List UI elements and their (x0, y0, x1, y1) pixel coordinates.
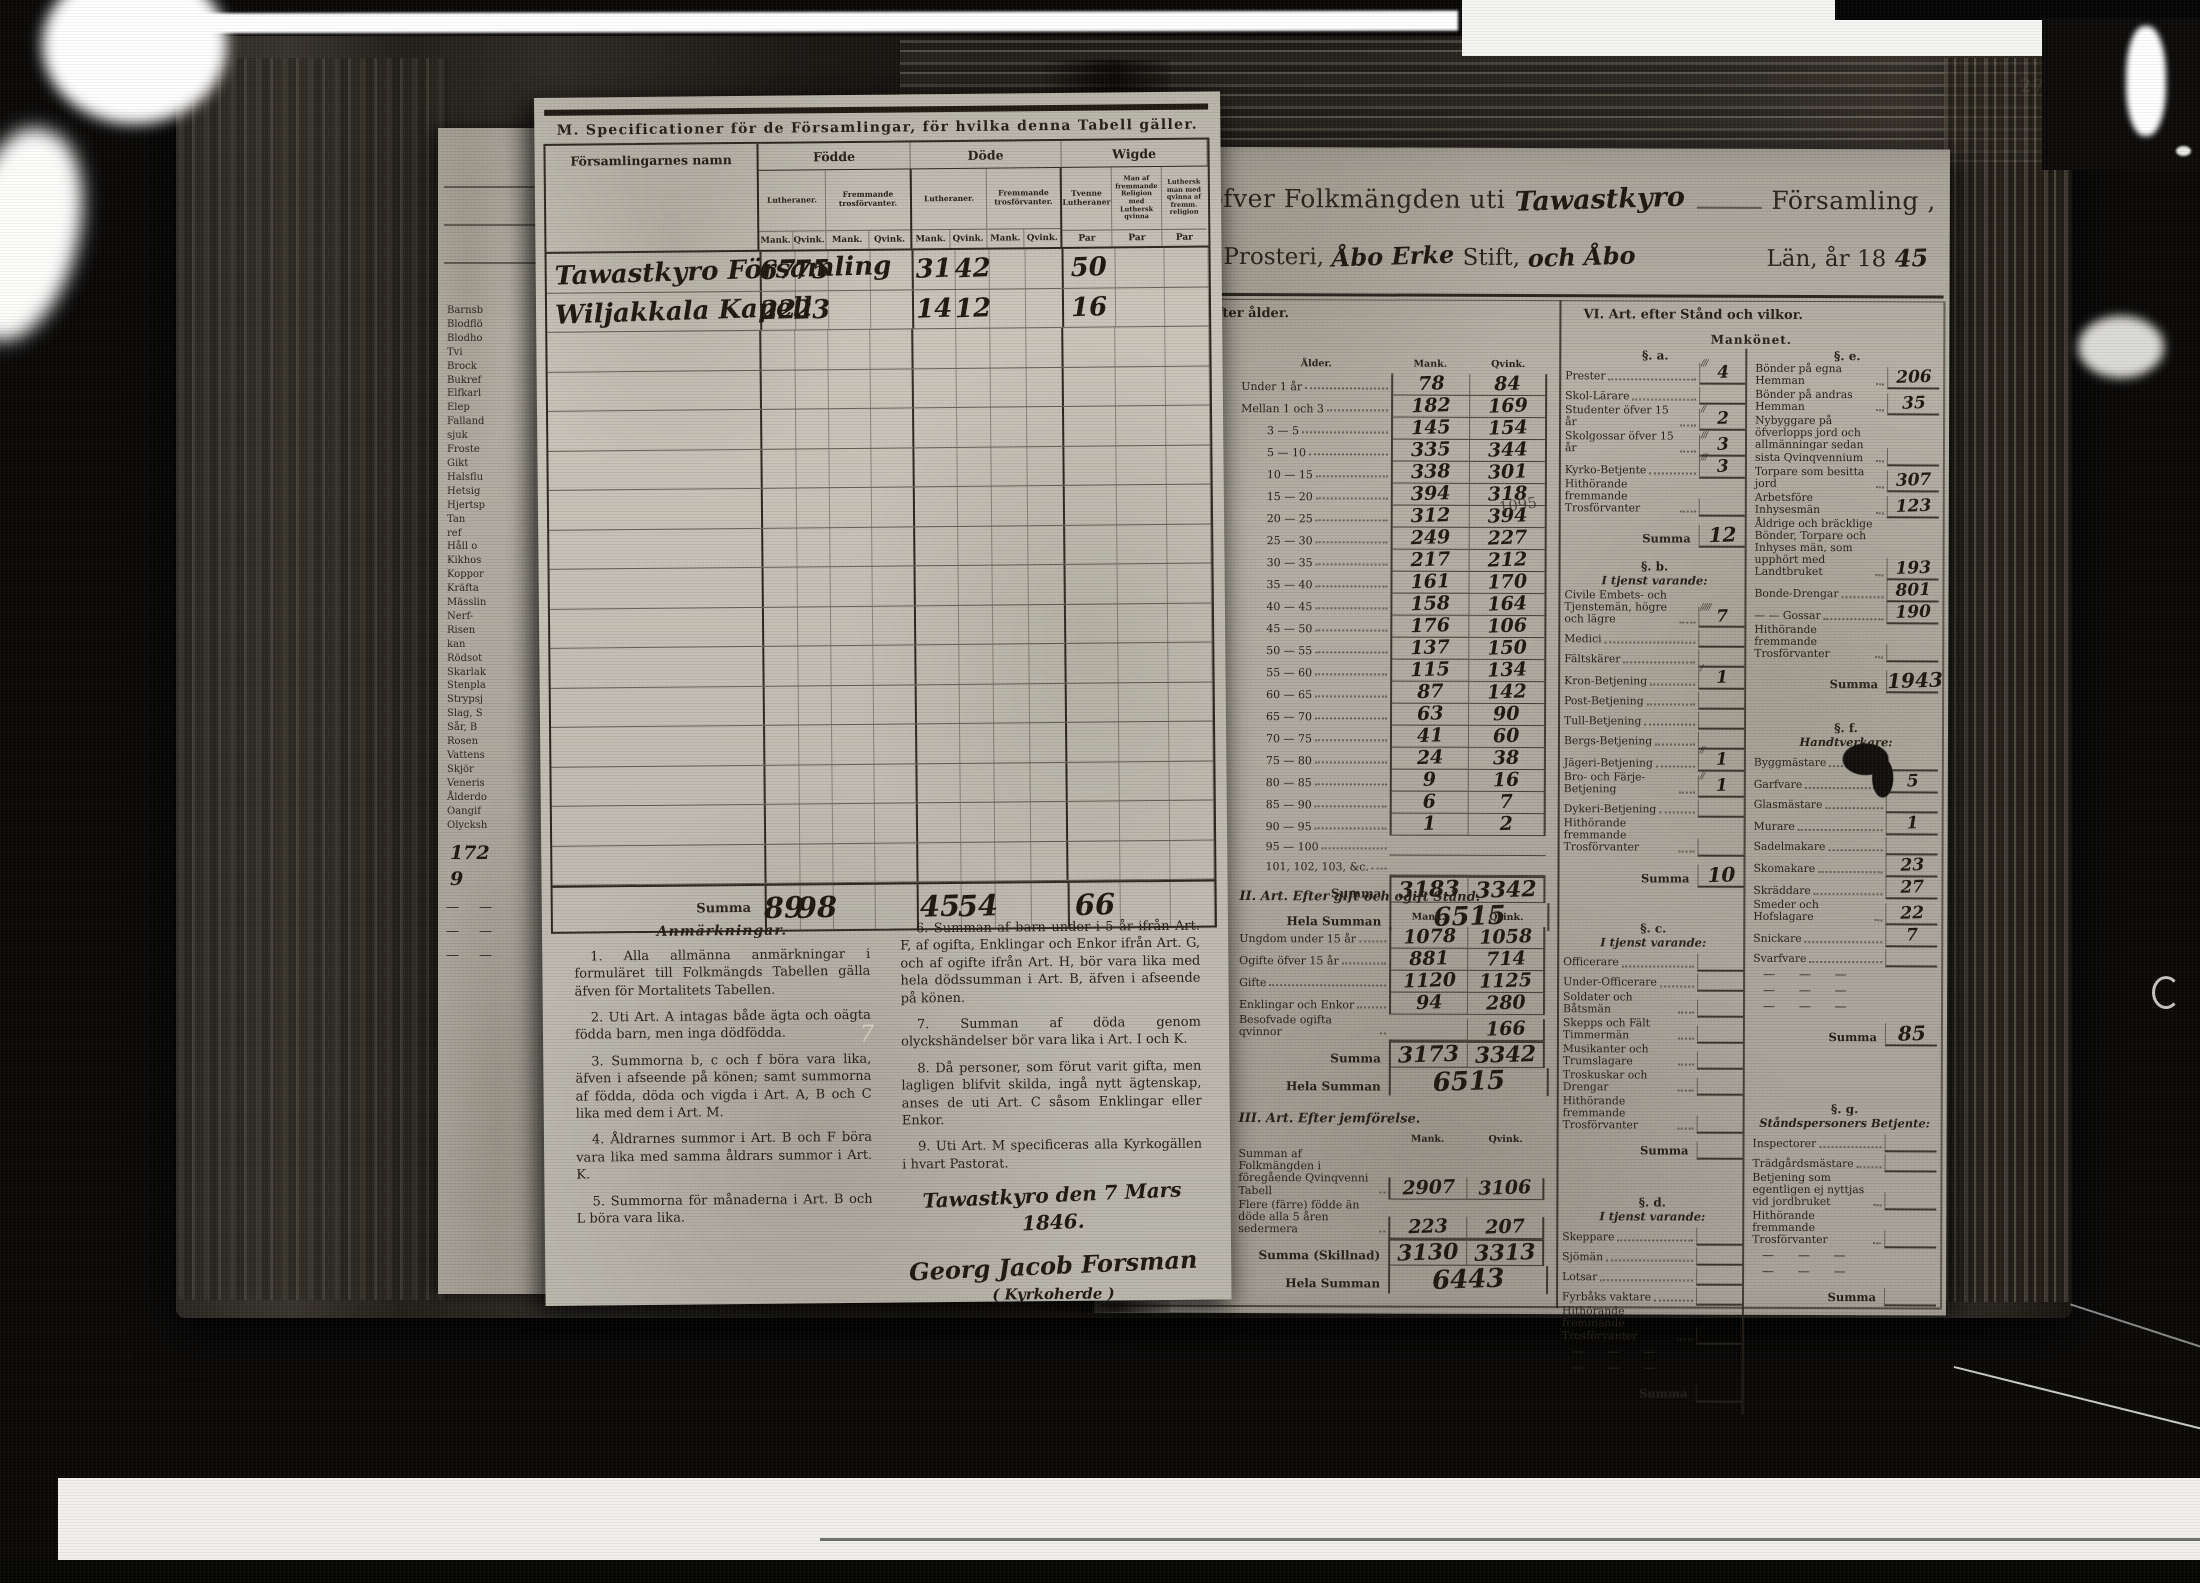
anmarkning-note: 6. Summan af barn under i 5 år ifrån Art… (900, 918, 1201, 1008)
qvink-value: 2 (1499, 814, 1513, 835)
qvink-cell: 84 (1469, 374, 1547, 396)
dot-leader (1876, 410, 1884, 412)
dot-leader (1605, 642, 1696, 644)
cell-value (993, 644, 1029, 683)
anmarkning-note: 9. Uti Art. M specificeras alla Kyrkogäl… (902, 1136, 1202, 1174)
cell-value (800, 844, 833, 883)
cell-value (799, 646, 832, 685)
hela-summan-label: Hela Summan (1238, 1277, 1388, 1293)
cell-value (1117, 524, 1167, 563)
row-label-text: 70 — 75 (1266, 733, 1312, 745)
stand-item: Snickare7 (1753, 925, 1937, 947)
dot-leader (1316, 563, 1388, 565)
cell-value: 75 (795, 251, 828, 290)
stand-item: Musikanter och Trumslagare (1563, 1043, 1743, 1070)
stand-item: Skol-Lärare (1565, 384, 1745, 405)
count-handwritten: 14 (916, 293, 953, 324)
stand-item-number: 801 (1895, 582, 1931, 601)
row-label-text: Ogifte öfver 15 år (1239, 955, 1339, 968)
stand-item: Skeppare (1562, 1226, 1742, 1247)
table-row (548, 445, 1210, 491)
par-label: Par (1112, 229, 1161, 246)
summa-label: Summa (Skillnad) (1238, 1249, 1388, 1265)
mank-value: 87 (1417, 681, 1444, 703)
stand-item: Kyrko-Betjente///3 (1565, 456, 1745, 478)
dot-leader (1269, 984, 1386, 986)
hela-label-text: Hela Summan (1286, 1080, 1381, 1094)
stand-item-label: Trädgårdsmästare (1752, 1157, 1853, 1171)
table-row: 60 — 6587142 (1240, 681, 1552, 704)
cell-value (871, 369, 914, 408)
qvink-value: 90 (1493, 704, 1520, 726)
group-summa-cell: 10 (1697, 864, 1743, 887)
notes-list-1: 1. Alla allmänna anmärkningar i formulär… (574, 946, 873, 1229)
hela-summan-row: Hela Summan6515 (1239, 1067, 1551, 1096)
cell-value (1116, 406, 1166, 445)
dot-leader (1873, 1242, 1881, 1244)
qvink-value: 166 (1485, 1019, 1525, 1041)
cell-value (915, 487, 958, 526)
stand-item-value (1884, 1192, 1936, 1210)
cell-value (961, 803, 995, 842)
notes-column-2: 6. Summan af barn under i 5 år ifrån Art… (900, 918, 1204, 1306)
anmarkning-note: 7. Summan af döda genom olyckshändelser … (901, 1014, 1201, 1052)
row-label-text: 85 — 90 (1266, 799, 1312, 811)
cell-value (1165, 287, 1209, 326)
row-label-text: 35 — 40 (1266, 579, 1312, 591)
cell-value (832, 685, 874, 724)
stand-item-number: 3 (1716, 437, 1728, 455)
qvink-cell: 1058 (1467, 926, 1545, 948)
summa-mank-value: 3130 (1397, 1240, 1459, 1266)
mank-label: Mank. (826, 231, 869, 249)
dot-leader (1315, 805, 1387, 807)
dot-leader (1315, 761, 1387, 763)
stand-group: §. a.Prester///4Skol-LärareStudenter öfv… (1565, 348, 1746, 548)
mank-cell: 1078 (1389, 926, 1467, 948)
group-summa-cell (1884, 1288, 1936, 1306)
cell-value (829, 369, 871, 408)
cell-value (991, 486, 1027, 525)
signature-name: Georg Jacob Forsman (903, 1243, 1204, 1288)
cell-value (800, 804, 833, 843)
table-row: 5 — 10335344 (1241, 439, 1553, 462)
dot-leader (1644, 724, 1695, 726)
summa-row: Summa31733342 (1239, 1040, 1551, 1068)
stand-item-label: Snickare (1753, 932, 1801, 946)
title-printed-stift: Stift, (1463, 245, 1521, 271)
tally-marks: // (1700, 746, 1704, 756)
qvink-cell: 60 (1468, 726, 1546, 748)
cell-value (765, 725, 799, 764)
cell-value (957, 408, 991, 447)
group-header-row: Födde Döde Wigde (758, 140, 1207, 171)
dot-leader (1315, 695, 1387, 697)
stand-item-value (1884, 1154, 1936, 1172)
stand-item: Skepps och Fält Timmermän (1563, 1017, 1743, 1044)
row-label-text: Mellan 1 och 3 (1241, 403, 1324, 416)
stand-item: Hithörande fremmande Trosförvanter (1754, 624, 1938, 663)
row-label-text: 80 — 85 (1266, 777, 1312, 789)
stand-item-value (1886, 837, 1938, 855)
row-label-text: Enklingar och Enkor (1239, 999, 1354, 1012)
cell-namn (552, 805, 767, 846)
group-summa-row: Summa10 (1563, 864, 1743, 888)
mank-cell: 63 (1390, 704, 1468, 726)
cell-value (1116, 327, 1166, 366)
table-row: 25 — 30249227 (1241, 527, 1553, 550)
stand-item-number: 22 (1900, 905, 1924, 924)
cell-value (1167, 445, 1211, 484)
stand-item-number: 206 (1896, 369, 1932, 388)
cell-value (995, 842, 1031, 881)
stand-item-label: Svarfvare (1753, 952, 1806, 966)
dot-leader (1315, 827, 1387, 829)
sub-label: Fremmande trosförvanter. (826, 169, 911, 230)
stand-group: §. g.Ståndspersoners Betjente:Inspectore… (1752, 1101, 1937, 1306)
hela-summan-cell: 6515 (1389, 1068, 1549, 1097)
qvink-cell: 227 (1469, 528, 1547, 550)
summa-handwritten: 66 (1074, 887, 1115, 922)
light-dot (2176, 146, 2191, 156)
cell-value (830, 488, 872, 527)
summa-qvink: 3342 (1467, 1041, 1545, 1068)
table-column-headers: Mank.Qvink. (1239, 908, 1551, 927)
row-label: 85 — 90 (1240, 799, 1390, 814)
stand-item-number: 123 (1895, 498, 1931, 517)
ink-blot (1838, 734, 1904, 800)
stand-item-label: Nybyggare på öfverlopps jord och allmänn… (1755, 415, 1873, 466)
cell-value (874, 764, 917, 803)
stand-item-value (1697, 1025, 1743, 1043)
table-row: Wiljakkala Kapell2223141216 (547, 287, 1209, 333)
qvink-cell: 301 (1469, 462, 1547, 484)
group-summa-value: 12 (1708, 524, 1736, 546)
summa-label: Summa (1239, 1052, 1389, 1068)
cell-value (1027, 486, 1065, 525)
cell-value (830, 448, 872, 487)
table-row (547, 327, 1209, 373)
summa-handwritten: 54 (957, 888, 998, 923)
summa-qvink-value: 3313 (1474, 1240, 1536, 1266)
row-label: 80 — 85 (1240, 777, 1390, 792)
table-row: 10 — 15338301 (1241, 461, 1553, 484)
left-page-stack-edge (178, 58, 450, 1300)
cell-value (994, 802, 1030, 841)
fill-in-rule (1697, 189, 1761, 209)
mank-cell: 223 (1388, 1216, 1466, 1238)
row-label-text: Summan af Folkmängden i föregående Qvinq… (1238, 1148, 1376, 1198)
dot-leader (1874, 919, 1882, 921)
qvink-value: 714 (1486, 948, 1526, 970)
mank-cell: 335 (1391, 440, 1469, 462)
mank-value: 394 (1411, 483, 1451, 505)
stand-item-label: Soldater och Båtsmän (1563, 991, 1675, 1018)
cell-value (1066, 604, 1118, 643)
dot-leader (1680, 511, 1696, 513)
stand-item-number: 4 (1717, 365, 1729, 383)
form-title: M. Specificationer för de Församlingar, … (534, 116, 1220, 139)
qvink-cell: 150 (1468, 638, 1546, 660)
dot-leader (1805, 941, 1883, 943)
qvink-cell: 134 (1468, 660, 1546, 682)
stand-group: §. d.I tjenst varande:SkeppareSjömänLots… (1562, 1196, 1743, 1403)
stand-item: Murare1 (1754, 813, 1938, 835)
mank-cell: 161 (1390, 572, 1468, 594)
mank-value: 2907 (1402, 1177, 1456, 1200)
dot-leader (1841, 596, 1883, 598)
stand-item-label: Skol-Lärare (1565, 390, 1629, 404)
dot-leader (1372, 868, 1387, 870)
stand-item-label: Sadelmakare (1754, 841, 1826, 855)
mank-value: 223 (1408, 1216, 1448, 1238)
qvink-value: 38 (1493, 748, 1520, 770)
cell-namn (548, 449, 763, 490)
title-printed-year: Län, år 18 (1766, 246, 1886, 272)
table-row (548, 366, 1210, 412)
cell-value (874, 724, 917, 763)
row-label-text: 25 — 30 (1267, 535, 1313, 547)
dot-leader (1678, 1064, 1694, 1066)
stand-item-number: 2 (1716, 411, 1728, 429)
group-summa-cell: 85 (1885, 1023, 1937, 1046)
dot-leader (1327, 409, 1388, 411)
stand-item: Hithörande fremmande Trosförvanter (1563, 1095, 1743, 1134)
stand-item-value (1886, 645, 1938, 663)
qvink-cell: 166 (1467, 1019, 1545, 1041)
qvink-value: 169 (1487, 395, 1527, 417)
qvink-cell: 90 (1468, 704, 1546, 726)
anmarkning-note: 3. Summorna b, c och f böra vara lika, ä… (575, 1051, 872, 1123)
group-heading: §. a. (1565, 348, 1745, 363)
cell-value (959, 684, 993, 723)
group-summa-row: Summa12 (1565, 524, 1745, 548)
row-label-text: 90 — 95 (1266, 821, 1312, 833)
qvink-cell: 344 (1469, 440, 1547, 462)
cell-value (798, 607, 831, 646)
row-label: 15 — 20 (1241, 491, 1391, 506)
cell-namn (549, 528, 764, 569)
qvink-value: 16 (1493, 770, 1520, 792)
title-printed-prosteri: Prosteri, (1223, 244, 1324, 270)
stand-group: §. c.I tjenst varande:OfficerareUnder-Of… (1563, 921, 1744, 1160)
cell-value (1064, 367, 1116, 406)
dash-row: — — — (1753, 966, 1937, 983)
stand-item-value (1697, 953, 1743, 971)
stand-item: Trädgårdsmästare (1752, 1151, 1936, 1172)
stand-item-label: Hithörande fremmande Trosförvanter (1564, 817, 1676, 856)
row-label: Mellan 1 och 3 (1241, 403, 1391, 418)
row-label-text: 60 — 65 (1266, 689, 1312, 701)
stand-item: Troskuskar och Drengar (1563, 1069, 1743, 1096)
cell-value (913, 329, 956, 368)
tally-marks: // (1700, 772, 1704, 782)
stand-item: Hithörande fremmande Trosförvanter (1565, 478, 1745, 517)
sub-label: Lutheraner. (759, 170, 826, 231)
cell-value (1067, 683, 1119, 722)
stand-item-label: Fältskärer (1564, 654, 1620, 668)
mank-value: 182 (1411, 395, 1451, 417)
stand-item: Inspectorer (1753, 1131, 1937, 1152)
col-group-wigde: Wigde (1061, 140, 1207, 167)
cell-value (873, 645, 916, 684)
anmarkning-note: 5. Summorna för månaderna i Art. B och L… (577, 1190, 873, 1228)
dot-leader (1678, 1090, 1694, 1092)
cell-value (765, 686, 799, 725)
summa-qvink: 3313 (1466, 1239, 1544, 1266)
summa-row: Summa (Skillnad)31303313 (1238, 1238, 1550, 1266)
cell-value (914, 368, 957, 407)
stand-item-value: 193 (1887, 559, 1939, 581)
group-heading: §. c. (1563, 921, 1743, 936)
cell-value (1165, 327, 1209, 366)
cell-value (1066, 525, 1118, 564)
cell-value (799, 725, 832, 764)
cell-value (990, 328, 1026, 367)
dot-leader (1818, 871, 1882, 873)
mank-value: 335 (1411, 439, 1451, 461)
row-label: Ungdom under 15 år (1239, 933, 1389, 948)
mank-value: 161 (1410, 571, 1450, 593)
qvink-value: 280 (1485, 992, 1525, 1014)
cell-value (1115, 248, 1165, 287)
dot-leader (1316, 497, 1388, 499)
table-row: 85 — 9067 (1240, 791, 1552, 814)
cell-value (1067, 643, 1119, 682)
cell-value (763, 449, 797, 488)
group-summa-row: Summa (1562, 1384, 1742, 1403)
cell-value (959, 605, 993, 644)
row-label: 55 — 60 (1240, 667, 1390, 682)
mank-value: 24 (1416, 747, 1443, 769)
dot-leader (1316, 475, 1388, 477)
row-label: Flere (färre) födde än döde alla 5 åren … (1238, 1199, 1388, 1238)
cell-value (1030, 723, 1068, 762)
col-header-namn: Församlingarnes namn (545, 144, 759, 252)
form-header-right: Födde Döde Wigde Lutheraner. Mank.Qvink.… (758, 140, 1208, 250)
dot-leader (1798, 829, 1883, 831)
stand-item-number: 5 (1906, 773, 1918, 791)
stand-item: Nybyggare på öfverlopps jord och allmänn… (1755, 415, 1939, 466)
cell-value (797, 488, 830, 527)
stand-item-number: 307 (1895, 472, 1931, 491)
stand-item-label: Garfvare (1754, 779, 1802, 793)
mank-value: 312 (1411, 505, 1451, 527)
col-header-qvink: Qvink. (1467, 1130, 1545, 1148)
cell-value (1167, 524, 1211, 563)
dot-leader (1876, 460, 1884, 462)
qvink-value: 1058 (1479, 926, 1533, 949)
row-label: 95 — 100 (1240, 841, 1390, 856)
stand-item-value (1698, 692, 1744, 710)
stand-item-value: ///4 (1699, 363, 1745, 385)
cell-value (994, 723, 1030, 762)
stand-item-label: Prester (1565, 370, 1605, 384)
row-label: 30 — 35 (1241, 557, 1391, 572)
sub-dode-lutheraner: Lutheraner. Mank.Qvink. (910, 169, 988, 249)
cell-value (828, 330, 870, 369)
qvink-value: 170 (1487, 571, 1527, 593)
stand-item-value: 7 (1885, 925, 1937, 947)
dot-leader (1315, 717, 1387, 719)
dot-leader (1678, 1037, 1694, 1039)
summa-qvink-value: 3342 (1474, 1042, 1536, 1068)
sub-label: Tvenne Lutheraner (1062, 167, 1112, 229)
mank-value: 881 (1409, 948, 1449, 970)
stand-item-label: Skräddare (1753, 884, 1810, 898)
age-table: Ålder.Mank.Qvink.Under 1 år7884Mellan 1 … (1239, 355, 1553, 931)
stand-item-number: 190 (1895, 604, 1931, 623)
stand-item-value (1696, 1228, 1742, 1246)
row-label-text: 40 — 45 (1266, 601, 1312, 613)
sub-dode-fremmande: Fremmande trosförvanter. Mank.Qvink. (987, 168, 1062, 248)
film-edge-black-strip (1835, 0, 2200, 20)
table-row (550, 643, 1212, 689)
cell-namn (548, 370, 763, 411)
cell-value (958, 487, 992, 526)
cell-value (1068, 762, 1120, 801)
dot-leader (1316, 585, 1388, 587)
cell-value (1117, 485, 1167, 524)
stand-item-value (1698, 838, 1744, 856)
stand-item: Tull-Betjening (1564, 709, 1744, 730)
tally-marks: // (1701, 405, 1705, 415)
count-handwritten: 67 (760, 255, 797, 286)
cell-value (1029, 644, 1067, 683)
c-shaped-scratch (2152, 976, 2180, 1009)
table-row: Summan af Folkmängden i föregående Qvinq… (1238, 1148, 1550, 1200)
table-row (552, 840, 1214, 886)
mank-label: Mank. (912, 230, 950, 248)
cell-value (1068, 801, 1120, 840)
group-summa-cell (1696, 1384, 1742, 1402)
stand-item-label: Smeder och Hofslagare (1753, 898, 1871, 925)
cell-value: 23 (796, 291, 829, 330)
cell-value (1117, 445, 1167, 484)
anmarkning-note: 1. Alla allmänna anmärkningar i formulär… (574, 946, 870, 1001)
mank-cell: 87 (1390, 682, 1468, 704)
qvink-cell: 142 (1468, 682, 1546, 704)
row-label-text: 95 — 100 (1266, 841, 1319, 853)
col-header-label (1239, 1130, 1389, 1149)
cell-value (956, 368, 990, 407)
stand-item: Bönder på andras Hemman35 (1755, 389, 1939, 416)
cell-value (1166, 366, 1210, 405)
overexposed-bottom-band (58, 1478, 2200, 1564)
qvink-label: Qvink. (950, 230, 987, 248)
thin-rule (1104, 299, 1944, 303)
mank-value: 1078 (1403, 925, 1457, 948)
table-row: Ungdom under 15 år10781058 (1239, 926, 1551, 949)
cell-value (990, 249, 1026, 288)
stand-item-value: 27 (1885, 877, 1937, 899)
specification-table: Församlingarnes namn Födde Döde Wigde Lu… (543, 138, 1217, 934)
hela-label-text: Hela Summan (1285, 1278, 1380, 1292)
dark-corner-block (2042, 18, 2200, 170)
cell-value (1166, 406, 1210, 445)
mank-cell: 2907 (1388, 1177, 1466, 1199)
group-summa-value: 85 (1897, 1023, 1925, 1045)
cell-value (1168, 603, 1212, 642)
stand-item-value: ///3 (1699, 457, 1745, 479)
stand-item: Smeder och Hofslagare22 (1753, 898, 1937, 925)
mank-label: Mank. (759, 232, 793, 250)
row-label-text: 75 — 80 (1266, 755, 1312, 767)
stand-item-label: Musikanter och Trumslagare (1563, 1043, 1675, 1070)
cell-value: 16 (1064, 288, 1116, 327)
anmarkningar-heading: Anmärkningar. (574, 921, 870, 943)
tally-marks: /// (1701, 431, 1707, 441)
